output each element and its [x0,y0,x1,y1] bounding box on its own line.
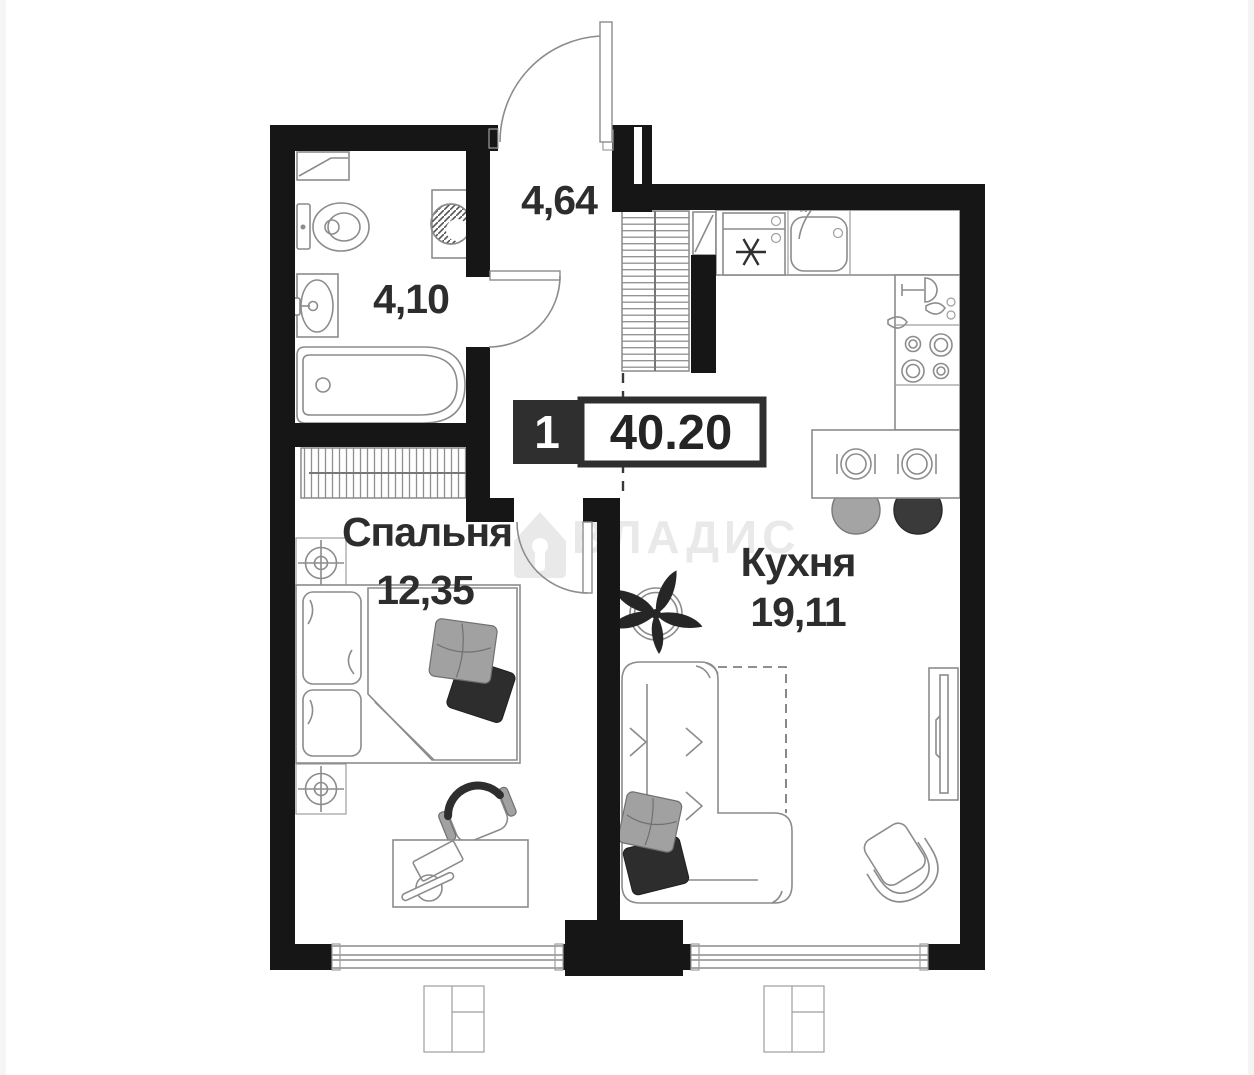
bedroom-name: Спальня [342,509,512,555]
fridge [723,213,785,275]
kitchen-name: Кухня [741,539,856,585]
window [691,944,928,970]
floor-plan-svg: ВЛАДИС [0,0,1254,1075]
area-badge: 1 40.20 [513,400,763,464]
wall-pier [565,920,683,976]
hall-closet [622,211,689,371]
wardrobe [301,448,477,498]
shelf [297,152,349,180]
rooms-count: 1 [534,406,560,458]
hallway-area: 4,64 [521,177,598,223]
window-type-symbol [424,986,484,1052]
bar-table-group [812,430,960,534]
bedroom-area: 12,35 [376,567,474,613]
office-chair [432,774,520,849]
sofa-pillow-gray [617,791,683,854]
bar-table [812,430,960,498]
desk [393,774,528,907]
bathroom-door [489,271,560,347]
bathroom-sink [288,274,338,337]
floor-plan-page: ВЛАДИС [0,0,1254,1075]
light-symbol [296,538,346,588]
bathtub [297,347,465,423]
light-symbol [296,764,346,814]
sofa [617,662,792,903]
wall-niche [693,212,716,255]
kitchen-area: 19,11 [750,589,846,635]
toilet [297,203,369,251]
bed-pillow-gray [428,618,497,684]
plant [608,568,704,654]
entrance-door [489,22,613,150]
window-type-symbol [764,986,824,1052]
total-area: 40.20 [610,406,733,460]
house-icon [514,512,566,578]
tv [929,668,958,800]
window [332,944,563,970]
bathroom-area: 4,10 [373,276,449,322]
armchair [852,814,949,913]
